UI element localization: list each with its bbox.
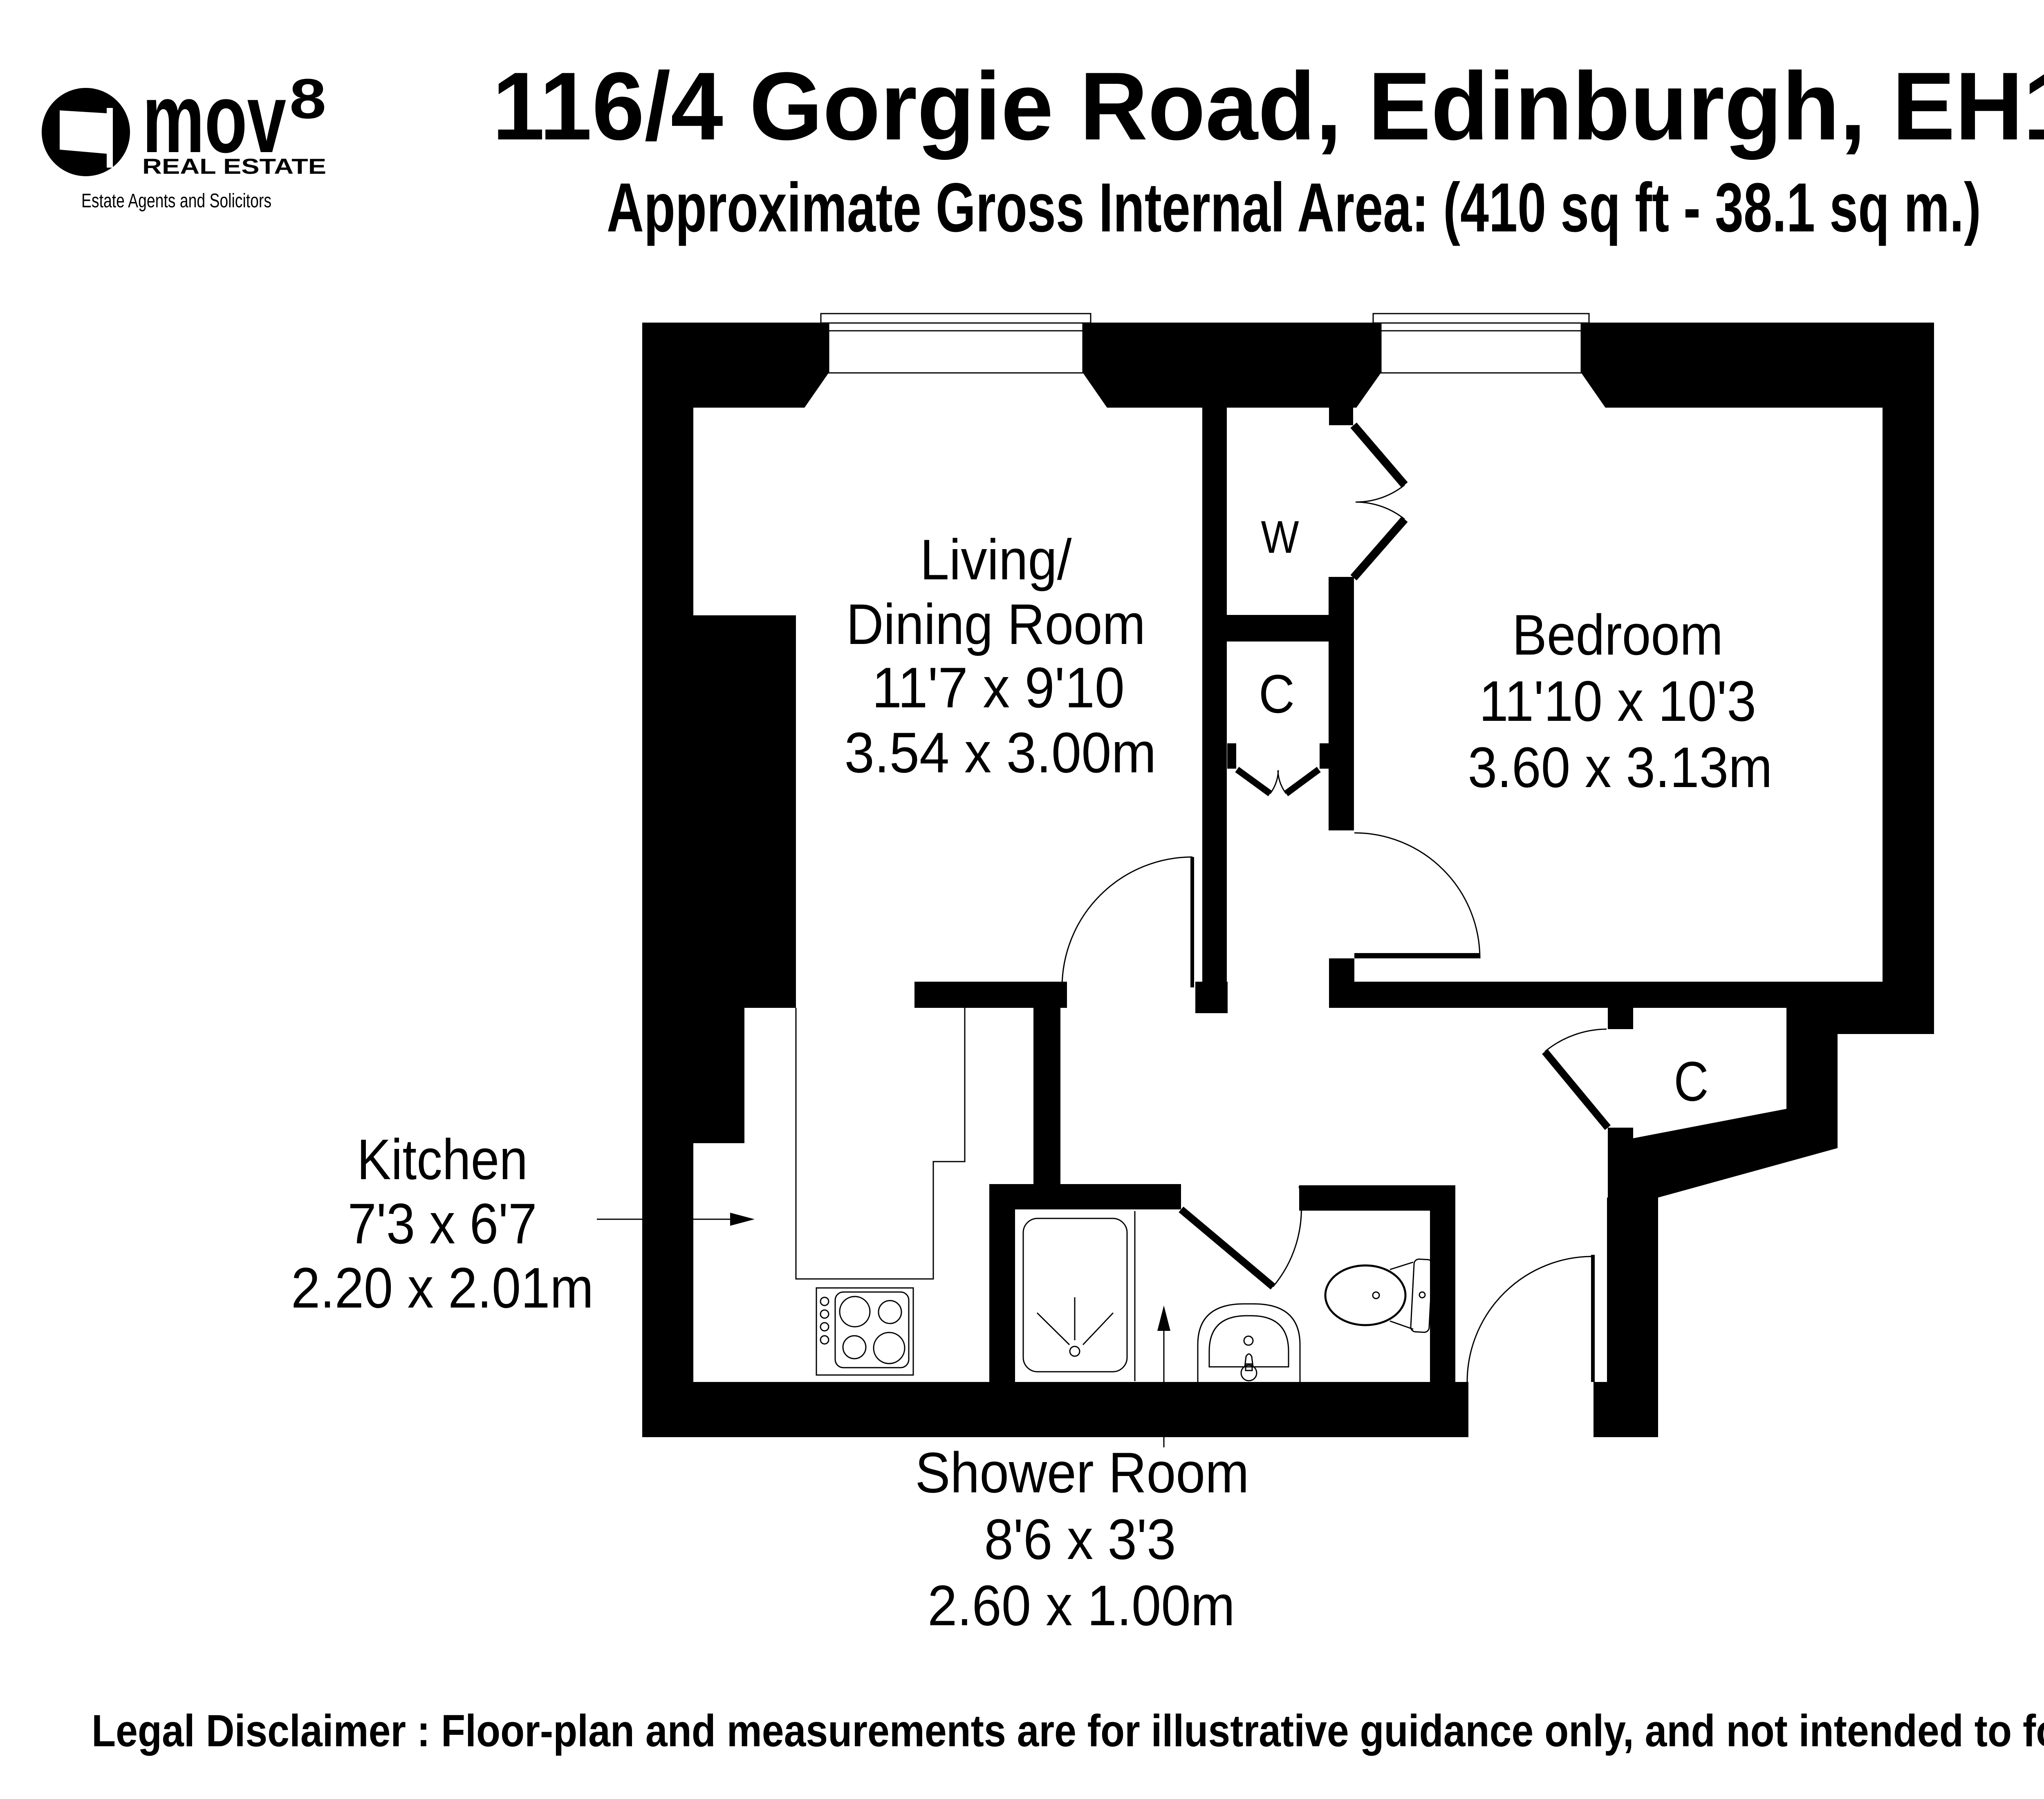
svg-text:Approximate Gross Internal Are: Approximate Gross Internal Area: (410 sq… xyxy=(607,169,1981,247)
svg-text:11'7 x 9'10: 11'7 x 9'10 xyxy=(872,655,1125,720)
svg-text:7'3 x 6'7: 7'3 x 6'7 xyxy=(348,1191,537,1256)
svg-text:Living/: Living/ xyxy=(920,527,1072,592)
svg-text:Kitchen: Kitchen xyxy=(357,1127,528,1191)
svg-text:8'6 x 3'3: 8'6 x 3'3 xyxy=(984,1507,1176,1571)
svg-text:3.54 x 3.00m: 3.54 x 3.00m xyxy=(845,720,1156,785)
svg-text:2.20 x 2.01m: 2.20 x 2.01m xyxy=(291,1256,594,1320)
svg-text:116/4 Gorgie Road, Edinburgh,: 116/4 Gorgie Road, Edinburgh, EH11 2NR xyxy=(492,52,2044,160)
svg-text:C: C xyxy=(1674,1050,1709,1113)
svg-text:C: C xyxy=(1259,664,1295,725)
svg-text:REAL ESTATE: REAL ESTATE xyxy=(142,155,326,179)
svg-text:Bedroom: Bedroom xyxy=(1512,603,1723,667)
svg-text:Shower Room: Shower Room xyxy=(915,1440,1249,1505)
svg-text:Dining Room: Dining Room xyxy=(846,592,1145,656)
svg-text:3.60 x 3.13m: 3.60 x 3.13m xyxy=(1468,735,1773,799)
svg-text:Estate Agents and Solicitors: Estate Agents and Solicitors xyxy=(81,190,271,212)
svg-text:Legal Disclaimer : Floor-plan: Legal Disclaimer : Floor-plan and measur… xyxy=(92,1706,2044,1756)
svg-text:11'10 x 10'3: 11'10 x 10'3 xyxy=(1479,669,1756,733)
svg-text:8: 8 xyxy=(289,67,326,130)
svg-text:W: W xyxy=(1261,511,1299,563)
svg-text:2.60 x 1.00m: 2.60 x 1.00m xyxy=(928,1573,1235,1637)
